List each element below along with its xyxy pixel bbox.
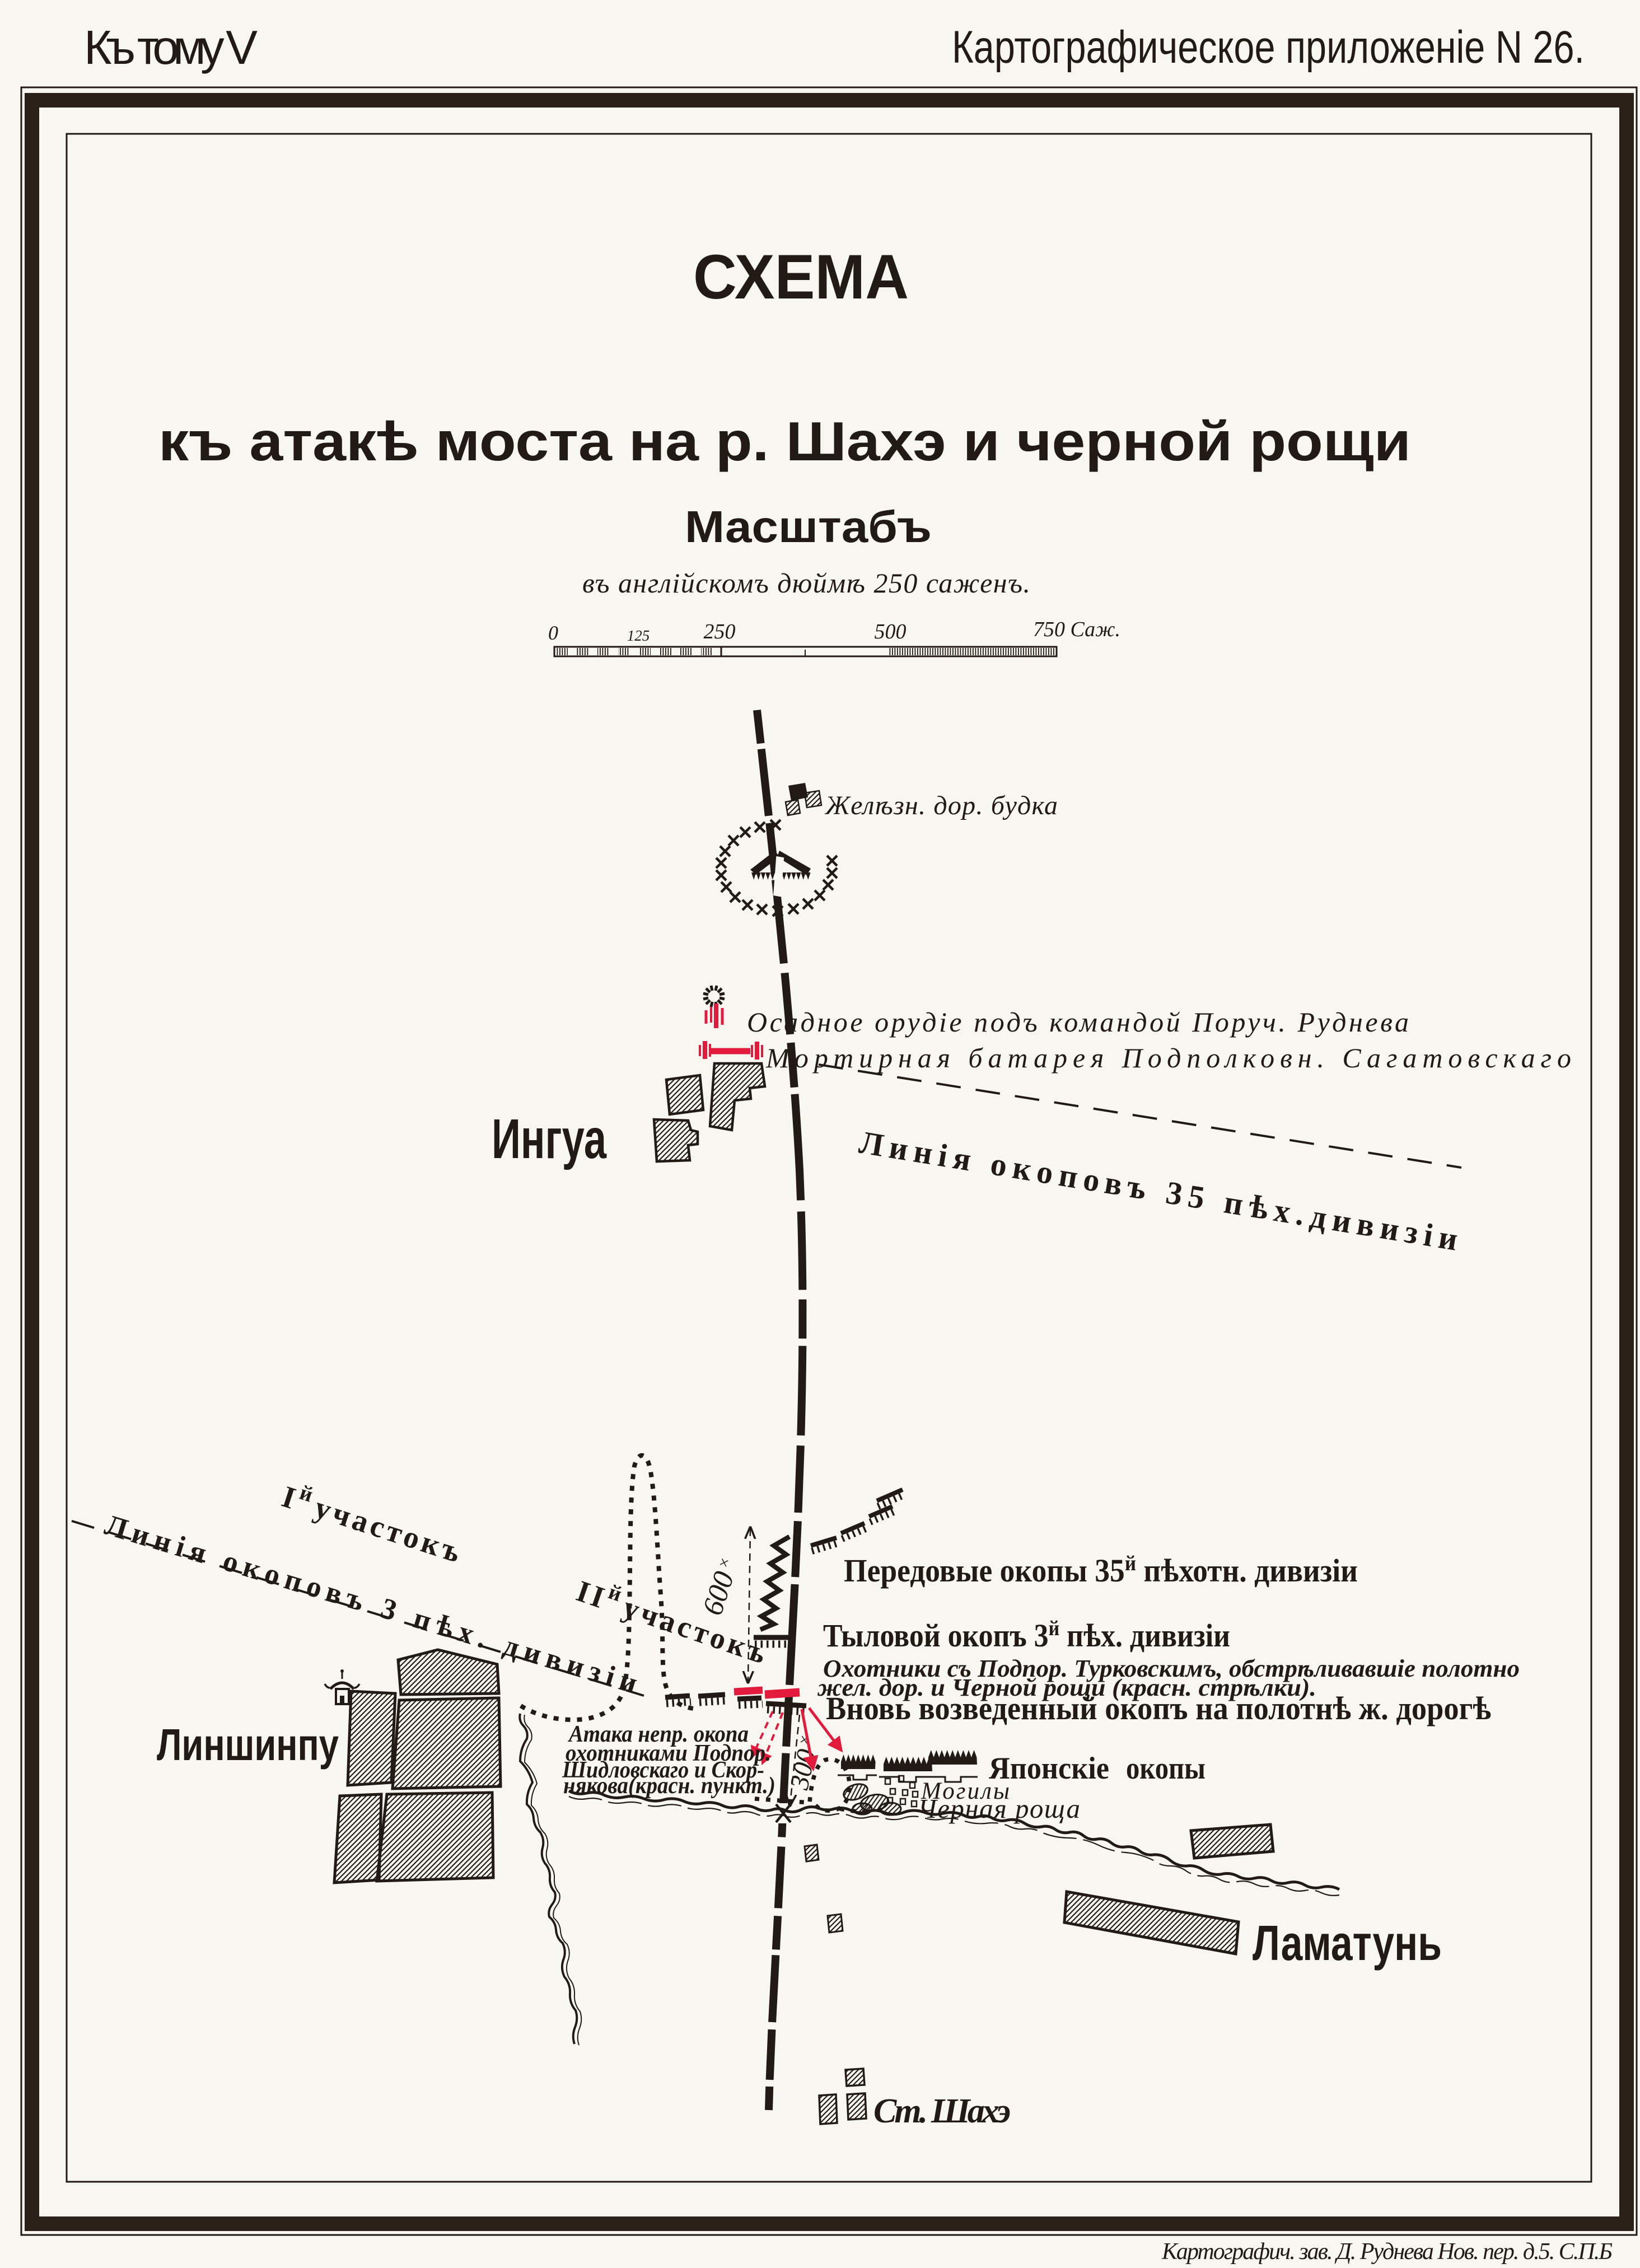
svg-text:Тыловой окопъ 3й пѣх. дивизіи: Тыловой окопъ 3й пѣх. дивизіи bbox=[823, 1617, 1230, 1654]
svg-text:250: 250 bbox=[704, 620, 736, 643]
svg-text:някова(красн. пункт.): някова(красн. пункт.) bbox=[563, 1773, 775, 1799]
svg-text:Вновь возведенный окопъ на пол: Вновь возведенный окопъ на полотнѣ ж. до… bbox=[826, 1690, 1491, 1726]
svg-text:къ атакѣ моста на р. Шахэ и че: къ атакѣ моста на р. Шахэ и черной рощи bbox=[158, 410, 1411, 472]
svg-text:Картографич. зав. Д. Руднева Н: Картографич. зав. Д. Руднева Нов. пер. д… bbox=[1161, 2239, 1613, 2265]
svg-text:Ингуа: Ингуа bbox=[492, 1108, 607, 1170]
svg-text:окопы: окопы bbox=[1126, 1751, 1206, 1786]
svg-text:Ламатунь: Ламатунь bbox=[1253, 1915, 1442, 1971]
svg-text:Картографическое приложеніе N: Картографическое приложеніе N 26. bbox=[952, 22, 1585, 73]
svg-text:0: 0 bbox=[548, 622, 558, 644]
svg-text:125: 125 bbox=[627, 627, 650, 644]
svg-text:500: 500 bbox=[875, 620, 907, 643]
svg-text:СХЕМА: СХЕМА bbox=[693, 242, 909, 312]
svg-text:Масштабъ: Масштабъ bbox=[685, 502, 932, 552]
svg-text:Линшинпу: Линшинпу bbox=[157, 1720, 339, 1770]
svg-text:Передовые окопы 35й пѣхотн. ди: Передовые окопы 35й пѣхотн. дивизіи bbox=[844, 1552, 1358, 1589]
svg-text:750 Саж.: 750 Саж. bbox=[1033, 618, 1120, 641]
svg-text:Желѣзн. дор. будка: Желѣзн. дор. будка bbox=[824, 791, 1058, 820]
svg-text:Мортирная батарея Подполковн.: Мортирная батарея Подполковн. Сагатовска… bbox=[765, 1042, 1571, 1074]
svg-text:Къ тому V: Къ тому V bbox=[84, 21, 258, 74]
svg-text:въ англійскомъ дюймѣ 250 сажен: въ англійскомъ дюймѣ 250 саженъ. bbox=[582, 567, 1030, 599]
svg-text:Ст. Шахэ: Ст. Шахэ bbox=[873, 2092, 1011, 2130]
